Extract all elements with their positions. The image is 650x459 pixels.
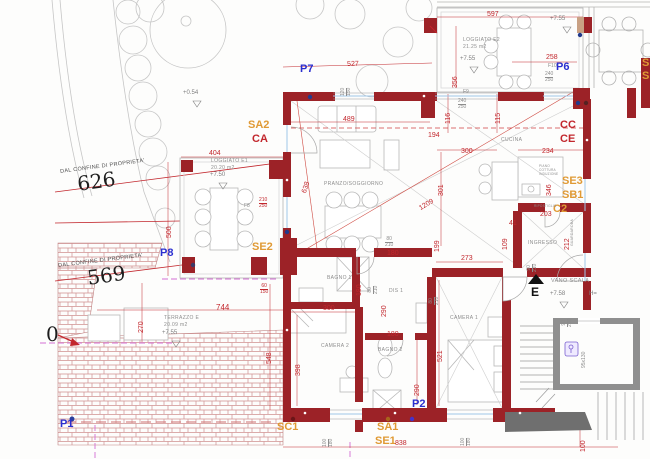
parapet-size: 60150	[260, 284, 268, 295]
dim-199: 199	[434, 240, 441, 252]
dim-41: 41	[509, 220, 517, 227]
dim-115: 115	[495, 113, 502, 124]
room-label-bed1: CAMERA 1	[450, 316, 478, 321]
level-landing: +7.58	[550, 291, 565, 297]
window-tag-f8: F8	[244, 204, 250, 209]
floorplan: P7 P6 P8 P2 P1 SA2 SE2 SC1 SA1 SE1 SE3 S…	[0, 0, 650, 459]
dim-838: 838	[395, 440, 407, 447]
marker-se1: SE1	[375, 436, 396, 447]
room-label-loggia2: LOGGIATO E2	[463, 38, 500, 43]
level-terrace: +7.55	[162, 330, 177, 336]
room-label-closet: GUARDAROBA	[571, 219, 575, 246]
room-label-bed2: CAMERA 2	[321, 344, 349, 349]
dim-109: 109	[502, 238, 509, 250]
room-label-living: PRANZO/SOGGIORNO	[324, 182, 383, 187]
boundary-number-cut: 0	[46, 324, 59, 344]
stairwell	[505, 318, 643, 440]
dim-234: 234	[542, 148, 554, 155]
window-size-bed2: 100180	[323, 439, 334, 447]
marker-ce: CE	[560, 134, 575, 145]
window-size-f8: 210250	[259, 198, 267, 209]
dim-290-hall: 290	[381, 305, 388, 317]
dim-356: 356	[452, 76, 459, 88]
door-size-hall2: 80210	[429, 297, 440, 305]
room-area-loggia2: 21.25 m2	[463, 45, 487, 50]
marker-se2: SE2	[252, 242, 273, 253]
room-label-terrace: TERRAZZO E	[164, 316, 199, 321]
marker-se3: SE3	[562, 176, 583, 187]
room-label-hall: DIS 1	[389, 289, 403, 294]
dim-273: 273	[461, 255, 473, 262]
dim-548: 548	[266, 352, 273, 364]
dim-398: 398	[295, 364, 302, 376]
marker-p1: P1	[60, 419, 73, 430]
marker-sb1: SB1	[562, 190, 583, 201]
dim-597: 597	[487, 11, 499, 18]
dim-300-kitchen: 300	[461, 148, 473, 155]
room-label-bath1: BAGNO 1	[327, 276, 352, 281]
marker-sc1: SC1	[277, 422, 298, 433]
dim-180-hall: 180	[387, 250, 399, 257]
dim-116: 116	[445, 113, 452, 124]
room-area-loggia1: 20.20 m2	[211, 166, 235, 171]
room-label-kitchen: CUCINA	[501, 138, 522, 143]
east-label: E	[531, 286, 539, 298]
window-size-living: 120150	[341, 88, 352, 96]
boundary-number-569: 569	[86, 263, 127, 288]
marker-p8: P8	[160, 248, 173, 259]
room-label-storage: RIPOSTIGLIO	[534, 205, 557, 208]
door-size-stair: 90200	[562, 319, 573, 327]
dim-100: 100	[580, 440, 587, 452]
dim-180-bath1: 180	[356, 284, 363, 296]
level-loggia1: +7.50	[210, 172, 225, 178]
door-size-hall3: 80210	[385, 237, 393, 248]
dim-203: 203	[540, 211, 552, 218]
dim-258: 258	[546, 54, 558, 61]
dim-527: 527	[347, 61, 359, 68]
dim-404: 404	[209, 150, 221, 157]
window-size-f9: 240250	[458, 99, 466, 110]
dim-180-bath2: 180	[387, 331, 399, 338]
dim-346: 346	[546, 184, 553, 196]
dim-290-bath2: 290	[414, 384, 421, 396]
dim-500: 500	[166, 226, 173, 238]
window-size-bed1: 100180	[461, 438, 472, 446]
marker-s-cut-2: S	[642, 71, 649, 82]
window-tag-f9: F9	[463, 90, 469, 95]
dim-489: 489	[343, 116, 355, 123]
room-area-terrace: 20.09 m2	[164, 323, 188, 328]
dim-300-bed2: 300	[323, 305, 335, 312]
level-garden: +0.54	[183, 90, 198, 96]
dim-194: 194	[428, 132, 440, 139]
lift-size: 95x130	[582, 352, 587, 368]
window-size-f10: 240250	[545, 72, 553, 83]
level-loggia2-a: +7.55	[550, 16, 565, 22]
dim-521: 521	[437, 350, 444, 362]
room-label-bath2: BAGNO 2	[378, 348, 403, 353]
room-label-loggia1: LOGGIATO E1	[211, 159, 248, 164]
height-note: H=	[589, 291, 597, 297]
marker-p2: P2	[412, 399, 425, 410]
window-tag-f10: F10	[548, 64, 557, 69]
dim-744: 744	[216, 304, 229, 312]
dim-270: 270	[138, 321, 145, 333]
level-loggia2-b: +7.55	[460, 56, 475, 62]
door-size-hall1: 80210	[368, 286, 379, 294]
dim-301: 301	[438, 184, 445, 196]
marker-s-cut-1: S	[642, 58, 649, 69]
cooktop-label-3: INDUZIONE	[539, 173, 558, 176]
marker-p7: P7	[300, 64, 313, 75]
room-label-entry: INGRESSO	[528, 241, 557, 246]
room-label-stairwell: VANO SCALA	[551, 279, 589, 285]
door-size-entry: 90210	[527, 264, 538, 272]
marker-cc: CC	[560, 120, 576, 131]
marker-sa1: SA1	[377, 422, 398, 433]
marker-p6: P6	[556, 62, 569, 73]
marker-sa2: SA2	[248, 120, 269, 131]
marker-ca: CA	[252, 134, 268, 145]
